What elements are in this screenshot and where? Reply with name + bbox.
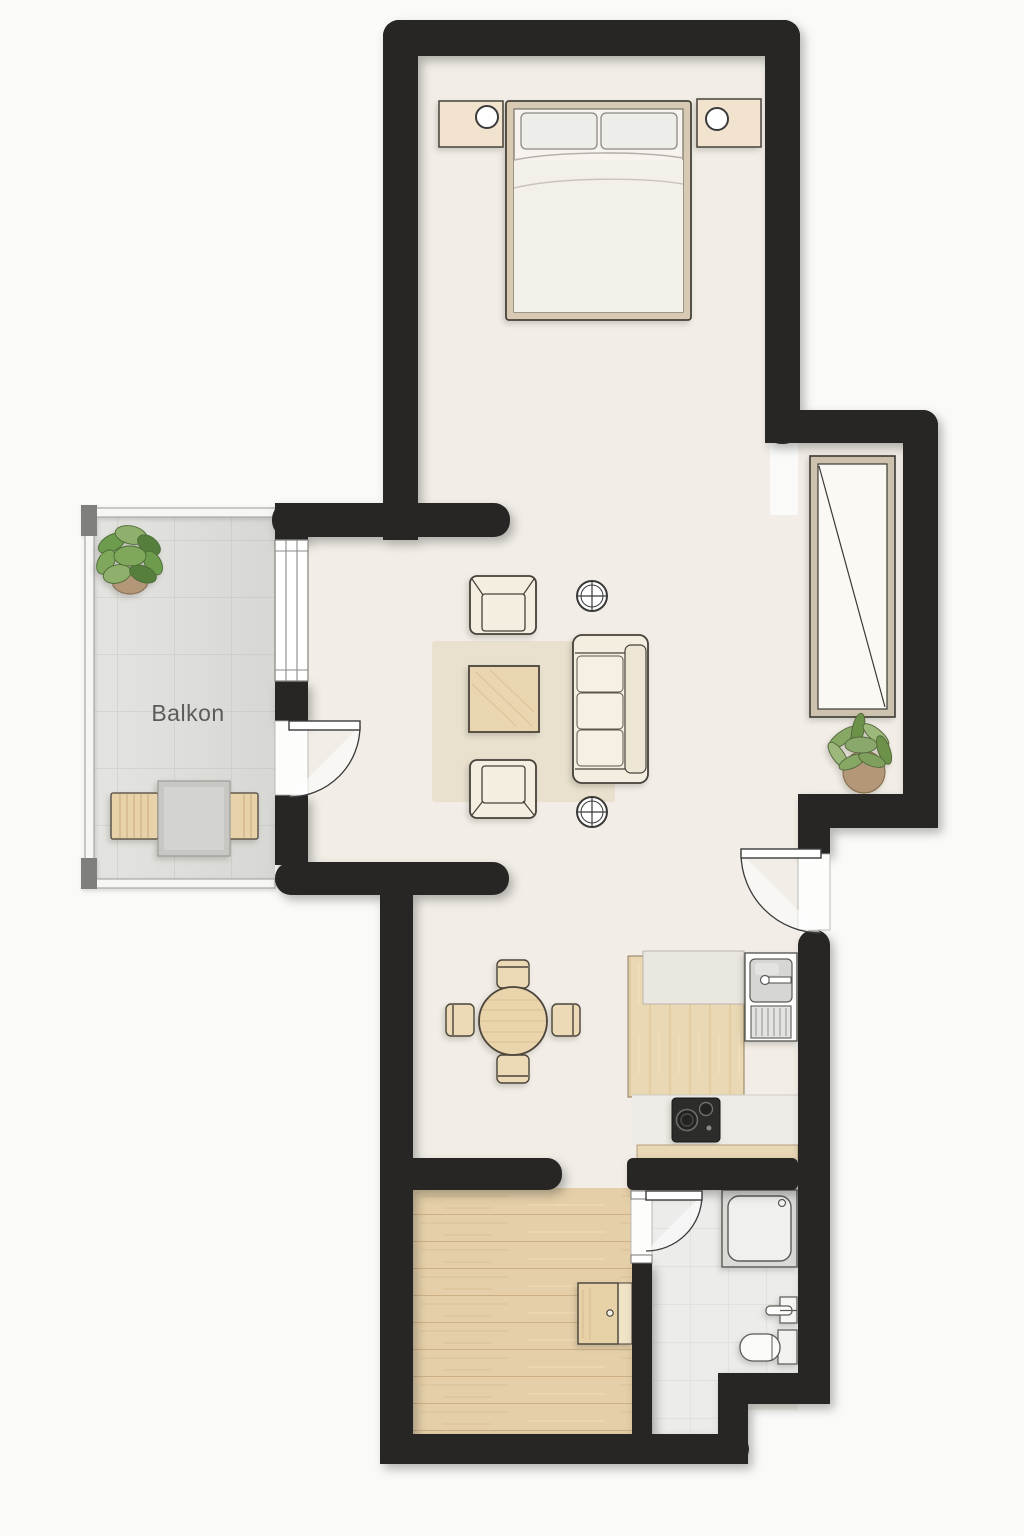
sink-faucet-arm bbox=[769, 977, 791, 983]
kitchen-sink-unit bbox=[745, 953, 797, 1041]
wardrobe bbox=[810, 456, 895, 717]
burner-small bbox=[700, 1103, 713, 1116]
balcony-window bbox=[275, 540, 308, 681]
wall-bedroom-left bbox=[383, 20, 418, 510]
double-bed bbox=[506, 101, 691, 320]
sink-highlight bbox=[755, 963, 779, 975]
wall-nook-right bbox=[903, 410, 938, 828]
wall-joint-6 bbox=[383, 1434, 413, 1454]
toilet-tank bbox=[778, 1330, 797, 1364]
bathroom-door-jamb-bottom bbox=[631, 1255, 652, 1263]
dining-chair-left bbox=[446, 1004, 474, 1036]
balcony-rail-top bbox=[85, 508, 275, 517]
lamp-right bbox=[706, 108, 728, 130]
floor-plan-svg: Balkon bbox=[0, 0, 1024, 1536]
wall-right-lower bbox=[798, 930, 830, 1404]
bed-sheets bbox=[514, 153, 683, 312]
bathroom-tile-floor-lower bbox=[652, 1375, 718, 1435]
wall-balcony-below-door bbox=[275, 795, 308, 865]
kitchen-upper-cabinet bbox=[643, 951, 744, 1004]
pillow-right bbox=[601, 113, 677, 149]
balcony: Balkon bbox=[81, 505, 275, 889]
balcony-door-leaf bbox=[289, 721, 360, 730]
wall-woodroom-top bbox=[383, 1158, 562, 1190]
armchair-bottom-seat bbox=[482, 766, 525, 803]
wall-joint-4 bbox=[798, 1373, 830, 1393]
toilet-bowl bbox=[740, 1334, 780, 1361]
burner-large bbox=[677, 1110, 698, 1131]
wood-room-cabinet bbox=[578, 1283, 632, 1344]
sofa-backrest bbox=[625, 645, 646, 773]
bathroom-door-opening bbox=[631, 1191, 652, 1263]
dining-chair-right bbox=[552, 1004, 580, 1036]
balcony-post-bottom bbox=[81, 858, 97, 889]
wall-joint-1 bbox=[383, 495, 418, 540]
ceiling-light-bottom bbox=[577, 797, 607, 827]
wall-bedroom-right bbox=[765, 20, 800, 444]
shower bbox=[722, 1190, 797, 1267]
balcony-rail-bottom bbox=[85, 879, 275, 888]
pillow-left bbox=[521, 113, 597, 149]
wall-joint-2 bbox=[765, 403, 800, 443]
wall-bathroom-top bbox=[627, 1158, 798, 1190]
sofa bbox=[573, 635, 648, 783]
bathroom-door-leaf bbox=[646, 1191, 702, 1200]
drainboard bbox=[751, 1006, 791, 1038]
wall-entry-stub bbox=[798, 794, 830, 854]
sofa-cushion-1 bbox=[577, 656, 623, 692]
wood-room bbox=[413, 1188, 632, 1435]
armchair-bottom bbox=[470, 760, 536, 818]
shower-drain bbox=[779, 1200, 786, 1207]
sofa-cushion-2 bbox=[577, 693, 623, 729]
coffee-table bbox=[469, 666, 539, 732]
cooktop-knob bbox=[707, 1126, 712, 1131]
dining-chair-top bbox=[497, 960, 529, 988]
wall-joint-3 bbox=[903, 790, 938, 828]
wall-joint-5 bbox=[718, 1434, 748, 1454]
balcony-post-top bbox=[81, 505, 97, 536]
wall-balcony-between bbox=[275, 681, 308, 721]
balcony-table-top bbox=[164, 787, 224, 850]
entry-door-leaf bbox=[741, 849, 821, 858]
wall-bedroom-top bbox=[383, 20, 800, 56]
floor-plan-canvas: Balkon bbox=[0, 0, 1024, 1536]
lamp-left bbox=[476, 106, 498, 128]
armchair-top-seat bbox=[482, 594, 525, 631]
toilet bbox=[740, 1330, 797, 1364]
wall-building-bottom bbox=[383, 1434, 749, 1464]
balcony-rail-left bbox=[85, 508, 94, 888]
ceiling-light-top bbox=[577, 581, 607, 611]
wall-living-south bbox=[275, 862, 509, 895]
cabinet-side-panel bbox=[618, 1283, 632, 1344]
armchair-top bbox=[470, 576, 536, 634]
balcony-label: Balkon bbox=[151, 700, 224, 726]
cabinet-handle bbox=[607, 1310, 613, 1316]
sofa-cushion-3 bbox=[577, 730, 623, 766]
wall-bathroom-left bbox=[632, 1263, 652, 1435]
dining-chair-bottom bbox=[497, 1055, 529, 1083]
cooktop bbox=[672, 1098, 720, 1142]
sink-faucet-base bbox=[761, 976, 770, 985]
